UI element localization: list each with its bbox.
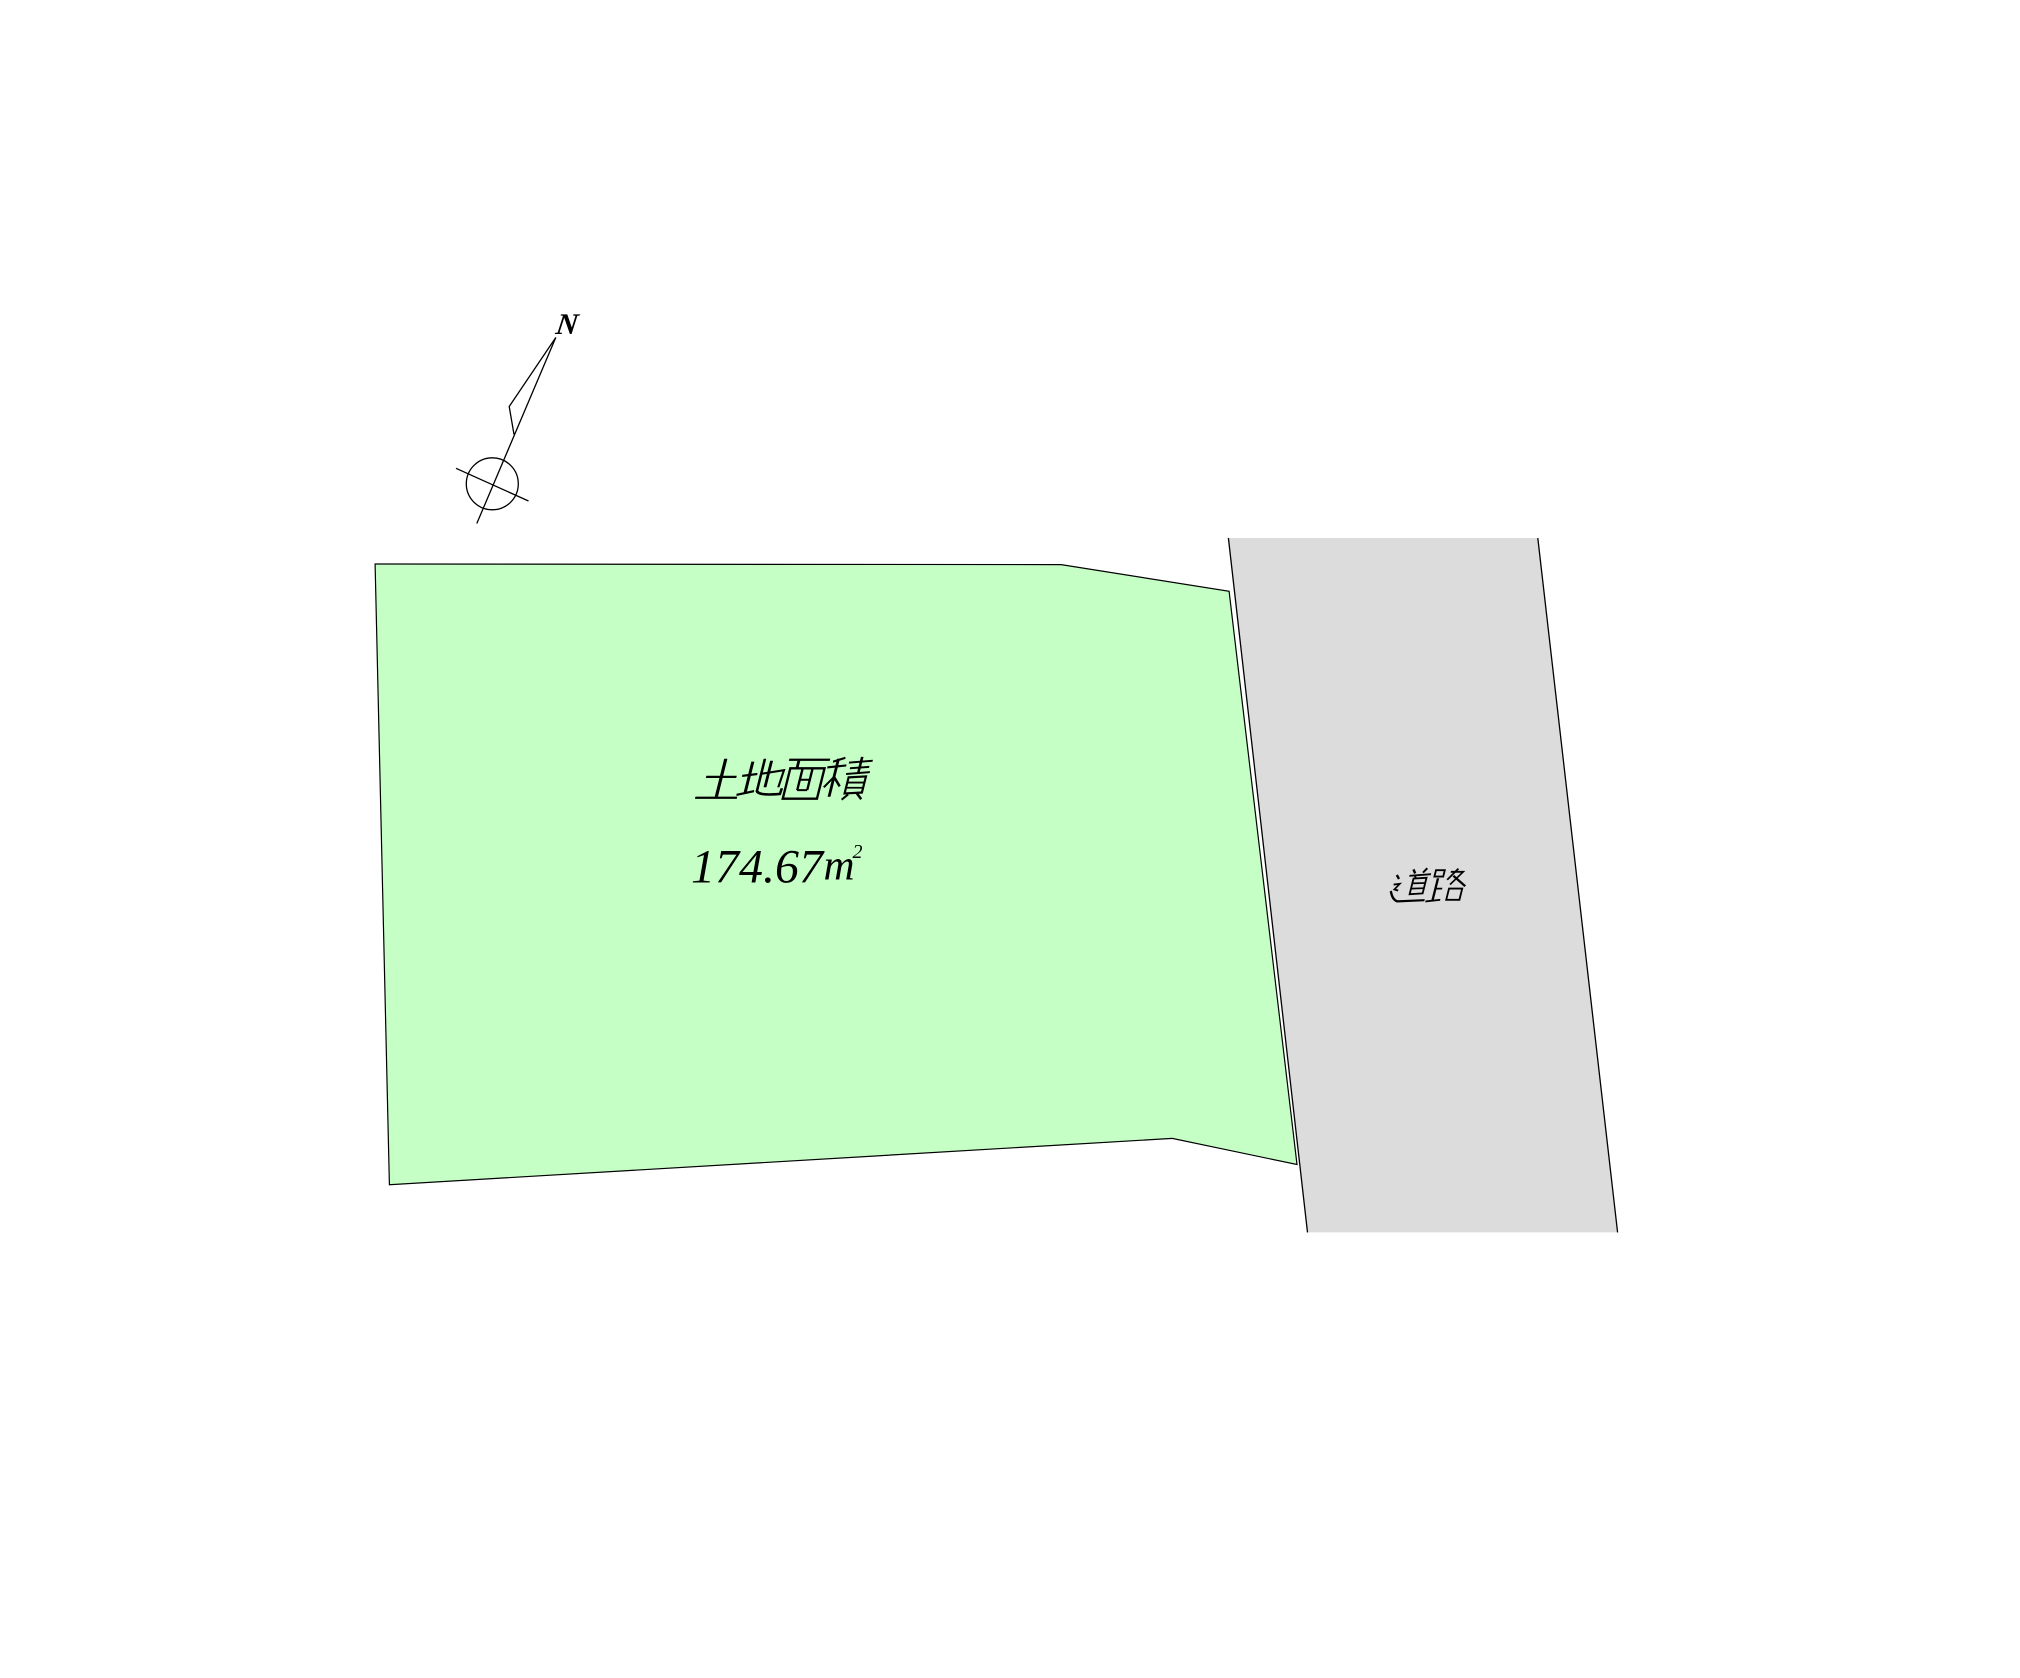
svg-text:2: 2: [853, 841, 863, 863]
svg-text:m: m: [824, 843, 855, 890]
svg-text:174.67: 174.67: [691, 841, 825, 894]
